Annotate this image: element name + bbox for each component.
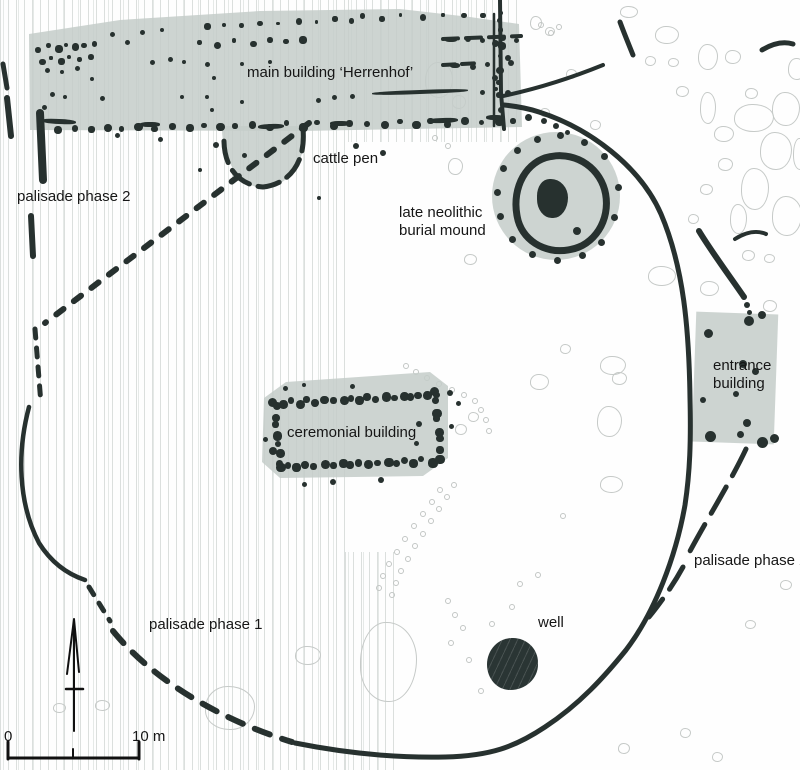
site-plan: main building ‘Herrenhof’ cattle pen pal… (0, 0, 800, 770)
posthole-dot (134, 123, 142, 131)
posthole-dot (525, 114, 532, 121)
posthole-dot (379, 16, 385, 22)
posthole-dot (611, 214, 618, 221)
north-arrow (66, 619, 83, 731)
posthole-dot (414, 392, 422, 400)
burial-mound-label: late neolithic burial mound (399, 204, 494, 240)
posthole-dot (498, 116, 503, 121)
posthole-dot (311, 399, 319, 407)
posthole-dot (240, 100, 244, 104)
posthole-dot (565, 130, 570, 135)
posthole-dot (346, 120, 353, 127)
posthole-dot (372, 396, 379, 403)
posthole-dot (240, 62, 244, 66)
posthole-dot (355, 459, 362, 466)
posthole-dot (213, 142, 219, 148)
posthole-dot (480, 13, 485, 18)
main-building-label: main building ‘Herrenhof’ (247, 64, 413, 82)
posthole-dot (283, 386, 288, 391)
cattle-pen-label: cattle pen (313, 150, 378, 168)
posthole-dot (499, 11, 503, 15)
posthole-dot (445, 38, 457, 42)
posthole-dot (49, 56, 52, 59)
posthole-dot (601, 153, 608, 160)
posthole-dot (45, 68, 50, 73)
posthole-dot (409, 459, 418, 468)
posthole-dot (205, 62, 210, 67)
posthole-dot (346, 461, 354, 469)
ceremonial-building-label: ceremonial building (287, 424, 416, 442)
posthole-dot (541, 118, 547, 124)
posthole-dot (205, 95, 209, 99)
posthole-dot (382, 392, 391, 401)
posthole-dot (393, 460, 400, 467)
posthole-dot (349, 18, 354, 23)
posthole-dot (456, 401, 461, 406)
posthole-dot (266, 124, 273, 131)
posthole-dot (232, 123, 238, 129)
phase2-entrance-arc (735, 232, 766, 239)
west-stroke-4 (3, 64, 7, 88)
posthole-dot (433, 415, 439, 421)
posthole-dot (168, 57, 173, 62)
posthole-dot (100, 96, 105, 101)
posthole-dot (496, 80, 501, 85)
posthole-dot (302, 482, 307, 487)
posthole-dot (330, 397, 337, 404)
posthole-dot (212, 76, 216, 80)
posthole-dot (267, 37, 273, 43)
posthole-dot (330, 479, 336, 485)
posthole-dot (72, 43, 79, 50)
posthole-dot (747, 310, 752, 315)
posthole-dot (514, 147, 521, 154)
posthole-dot (554, 257, 561, 264)
posthole-dot (485, 62, 490, 67)
posthole-dot (88, 54, 94, 60)
posthole-dot (242, 153, 247, 158)
posthole-dot (557, 132, 564, 139)
posthole-dot (257, 21, 263, 27)
posthole-dot (180, 95, 184, 99)
posthole-dot (39, 59, 45, 65)
posthole-dot (353, 143, 359, 149)
posthole-dot (115, 133, 120, 138)
posthole-dot (263, 437, 268, 442)
phase2-entrance-approach (699, 231, 744, 297)
west-stroke-1 (40, 113, 43, 180)
posthole-dot (140, 30, 145, 35)
posthole-dot (204, 23, 210, 29)
posthole-dot (75, 66, 80, 71)
phase2-fragment-top-right (762, 43, 793, 50)
posthole-dot (444, 121, 451, 128)
palisade-phase1-label: palisade phase 1 (149, 616, 262, 634)
posthole-dot (744, 302, 750, 308)
posthole-dot (350, 94, 355, 99)
palisade-phase2-right-dashed (689, 449, 746, 553)
posthole-dot (301, 461, 309, 469)
posthole-dot (151, 126, 157, 132)
posthole-dot (496, 67, 503, 74)
posthole-dot (480, 38, 485, 43)
posthole-dot (399, 13, 403, 17)
posthole-dot (534, 136, 541, 143)
posthole-dot (332, 16, 338, 22)
posthole-dot (72, 125, 79, 132)
posthole-dot (598, 239, 605, 246)
posthole-dot (508, 60, 514, 66)
posthole-dot (63, 95, 67, 99)
posthole-dot (283, 39, 288, 44)
posthole-dot (374, 460, 380, 466)
posthole-dot (465, 36, 471, 42)
phase2-fragment-top-mid (620, 22, 633, 55)
posthole-dot (216, 123, 225, 132)
posthole-dot (50, 92, 55, 97)
posthole-dot (160, 28, 164, 32)
west-arc-dashes (89, 587, 110, 621)
west-arc-solid (21, 407, 85, 580)
posthole-dot (332, 95, 337, 100)
posthole-dot (222, 23, 226, 27)
posthole-dot (110, 32, 115, 37)
posthole-dot (303, 396, 310, 403)
posthole-dot (427, 118, 433, 124)
posthole-dot (273, 431, 283, 441)
posthole-dot (299, 36, 306, 43)
posthole-dot (615, 184, 622, 191)
posthole-dot (700, 397, 706, 403)
posthole-dot (497, 18, 503, 24)
posthole-dot (500, 35, 506, 41)
scale-zero-label: 0 (4, 728, 12, 746)
posthole-dot (757, 437, 768, 448)
posthole-dot (58, 58, 64, 64)
posthole-dot (88, 126, 94, 132)
posthole-dot (310, 463, 317, 470)
posthole-dot (449, 424, 454, 429)
posthole-dot (705, 431, 716, 442)
posthole-dot (509, 236, 516, 243)
posthole-dot (432, 397, 439, 404)
posthole-dot (35, 47, 41, 53)
posthole-dot (579, 252, 586, 259)
posthole-dot (237, 175, 241, 179)
posthole-dot (391, 395, 397, 401)
posthole-dot (67, 55, 71, 59)
posthole-dot (197, 40, 202, 45)
posthole-dot (119, 126, 124, 131)
posthole-dot (104, 124, 112, 132)
palisade-phase1-dashed-arc (113, 631, 292, 742)
posthole-dot (407, 393, 414, 400)
posthole-dot (364, 121, 370, 127)
posthole-dot (436, 446, 444, 454)
posthole-dot (64, 43, 68, 47)
posthole-dot (276, 22, 280, 26)
posthole-dot (330, 462, 336, 468)
posthole-dot (505, 90, 511, 96)
west-stroke-2 (31, 216, 33, 256)
palisade-phase2-right-label: palisade phase 2 (694, 552, 800, 570)
scale-ten-label: 10 m (132, 728, 165, 746)
posthole-dot (416, 421, 422, 427)
posthole-dot (186, 124, 194, 132)
posthole-dot (316, 98, 321, 103)
posthole-dot (447, 390, 453, 396)
posthole-dot (441, 13, 445, 17)
palisade-phase2-diagonal-dashed (45, 123, 309, 323)
posthole-dot (514, 38, 519, 43)
posthole-dot (480, 90, 485, 95)
posthole-dot (497, 213, 504, 220)
posthole-dot (758, 311, 766, 319)
posthole-dot (60, 70, 64, 74)
west-stroke-3 (7, 98, 11, 136)
posthole-dot (77, 57, 82, 62)
posthole-dot (125, 40, 130, 45)
scale-bar (8, 742, 139, 759)
posthole-dot (54, 126, 62, 134)
posthole-dot (412, 121, 420, 129)
posthole-dot (272, 421, 279, 428)
posthole-dot (704, 329, 713, 338)
posthole-dot (470, 64, 476, 70)
posthole-dot (302, 383, 306, 387)
posthole-dot (505, 55, 511, 61)
posthole-dot (529, 251, 536, 258)
posthole-dot (436, 435, 443, 442)
west-vertical-dashes (35, 329, 41, 404)
posthole-dot (232, 38, 237, 43)
posthole-dot (150, 60, 155, 65)
posthole-dot (198, 168, 202, 172)
posthole-dot (330, 122, 338, 130)
posthole-dot (770, 434, 779, 443)
posthole-dot (435, 455, 444, 464)
posthole-dot (169, 123, 176, 130)
posthole-dot (249, 121, 256, 128)
posthole-dot (276, 449, 285, 458)
posthole-dot (378, 477, 384, 483)
posthole-dot (380, 150, 386, 156)
palisade-phase2-left-label: palisade phase 2 (17, 188, 130, 206)
posthole-dot (90, 77, 94, 81)
posthole-dot (210, 108, 214, 112)
posthole-dot (743, 419, 751, 427)
posthole-dot (317, 196, 321, 200)
posthole-dot (288, 397, 294, 403)
posthole-dot (158, 137, 163, 142)
entrance-building-label: entrance building (713, 357, 777, 393)
posthole-dot (37, 126, 42, 131)
posthole-dot (496, 92, 502, 98)
posthole-dot (299, 123, 308, 132)
posthole-dot (498, 42, 505, 49)
posthole-dot (42, 105, 47, 110)
posthole-dot (397, 119, 402, 124)
top-branch-curve (503, 65, 603, 96)
posthole-dot (81, 43, 86, 48)
posthole-dot (55, 45, 62, 52)
posthole-dot (46, 43, 51, 48)
posthole-dot (500, 165, 507, 172)
posthole-dot (350, 384, 355, 389)
posthole-dot (348, 395, 355, 402)
posthole-dot (450, 63, 460, 68)
posthole-dot (320, 396, 329, 405)
posthole-dot (737, 431, 744, 438)
posthole-dot (292, 463, 300, 471)
posthole-dot (553, 123, 559, 129)
posthole-dot (363, 393, 371, 401)
posthole-dot (744, 316, 754, 326)
posthole-dot (573, 227, 581, 235)
posthole-dot (239, 23, 244, 28)
posthole-dot (494, 87, 498, 91)
palisade-linework (0, 0, 800, 770)
posthole-dot (494, 189, 501, 196)
posthole-dot (581, 139, 588, 146)
posthole-dot (275, 441, 281, 447)
posthole-dot (182, 60, 186, 64)
well-label: well (538, 614, 564, 632)
posthole-dot (360, 13, 365, 18)
posthole-dot (498, 54, 502, 58)
posthole-dot (296, 18, 303, 25)
